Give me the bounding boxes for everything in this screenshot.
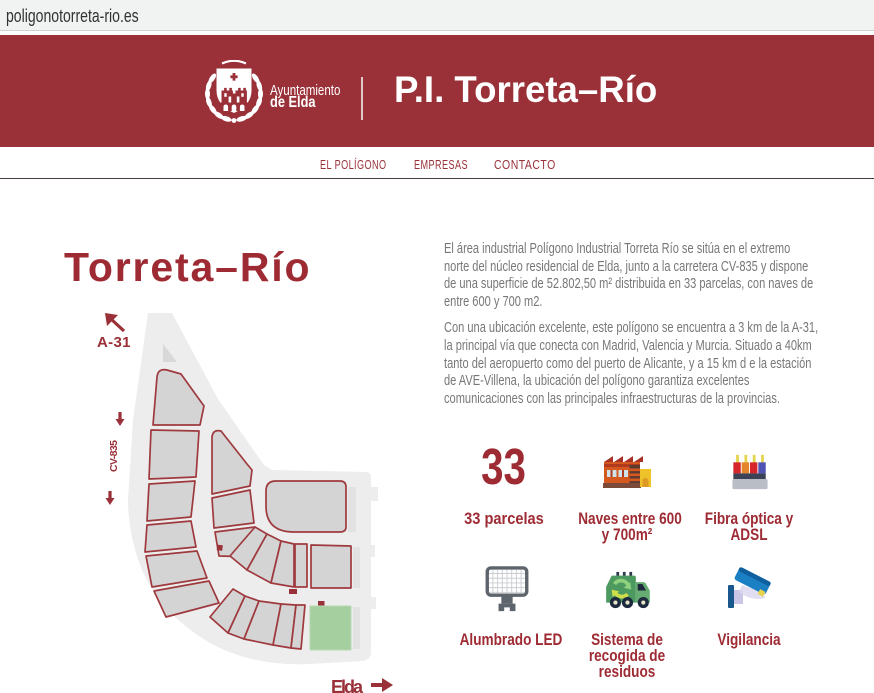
- svg-text:A-31: A-31: [97, 334, 131, 351]
- svg-text:Elda: Elda: [331, 677, 364, 693]
- svg-text:CV-835: CV-835: [108, 440, 120, 472]
